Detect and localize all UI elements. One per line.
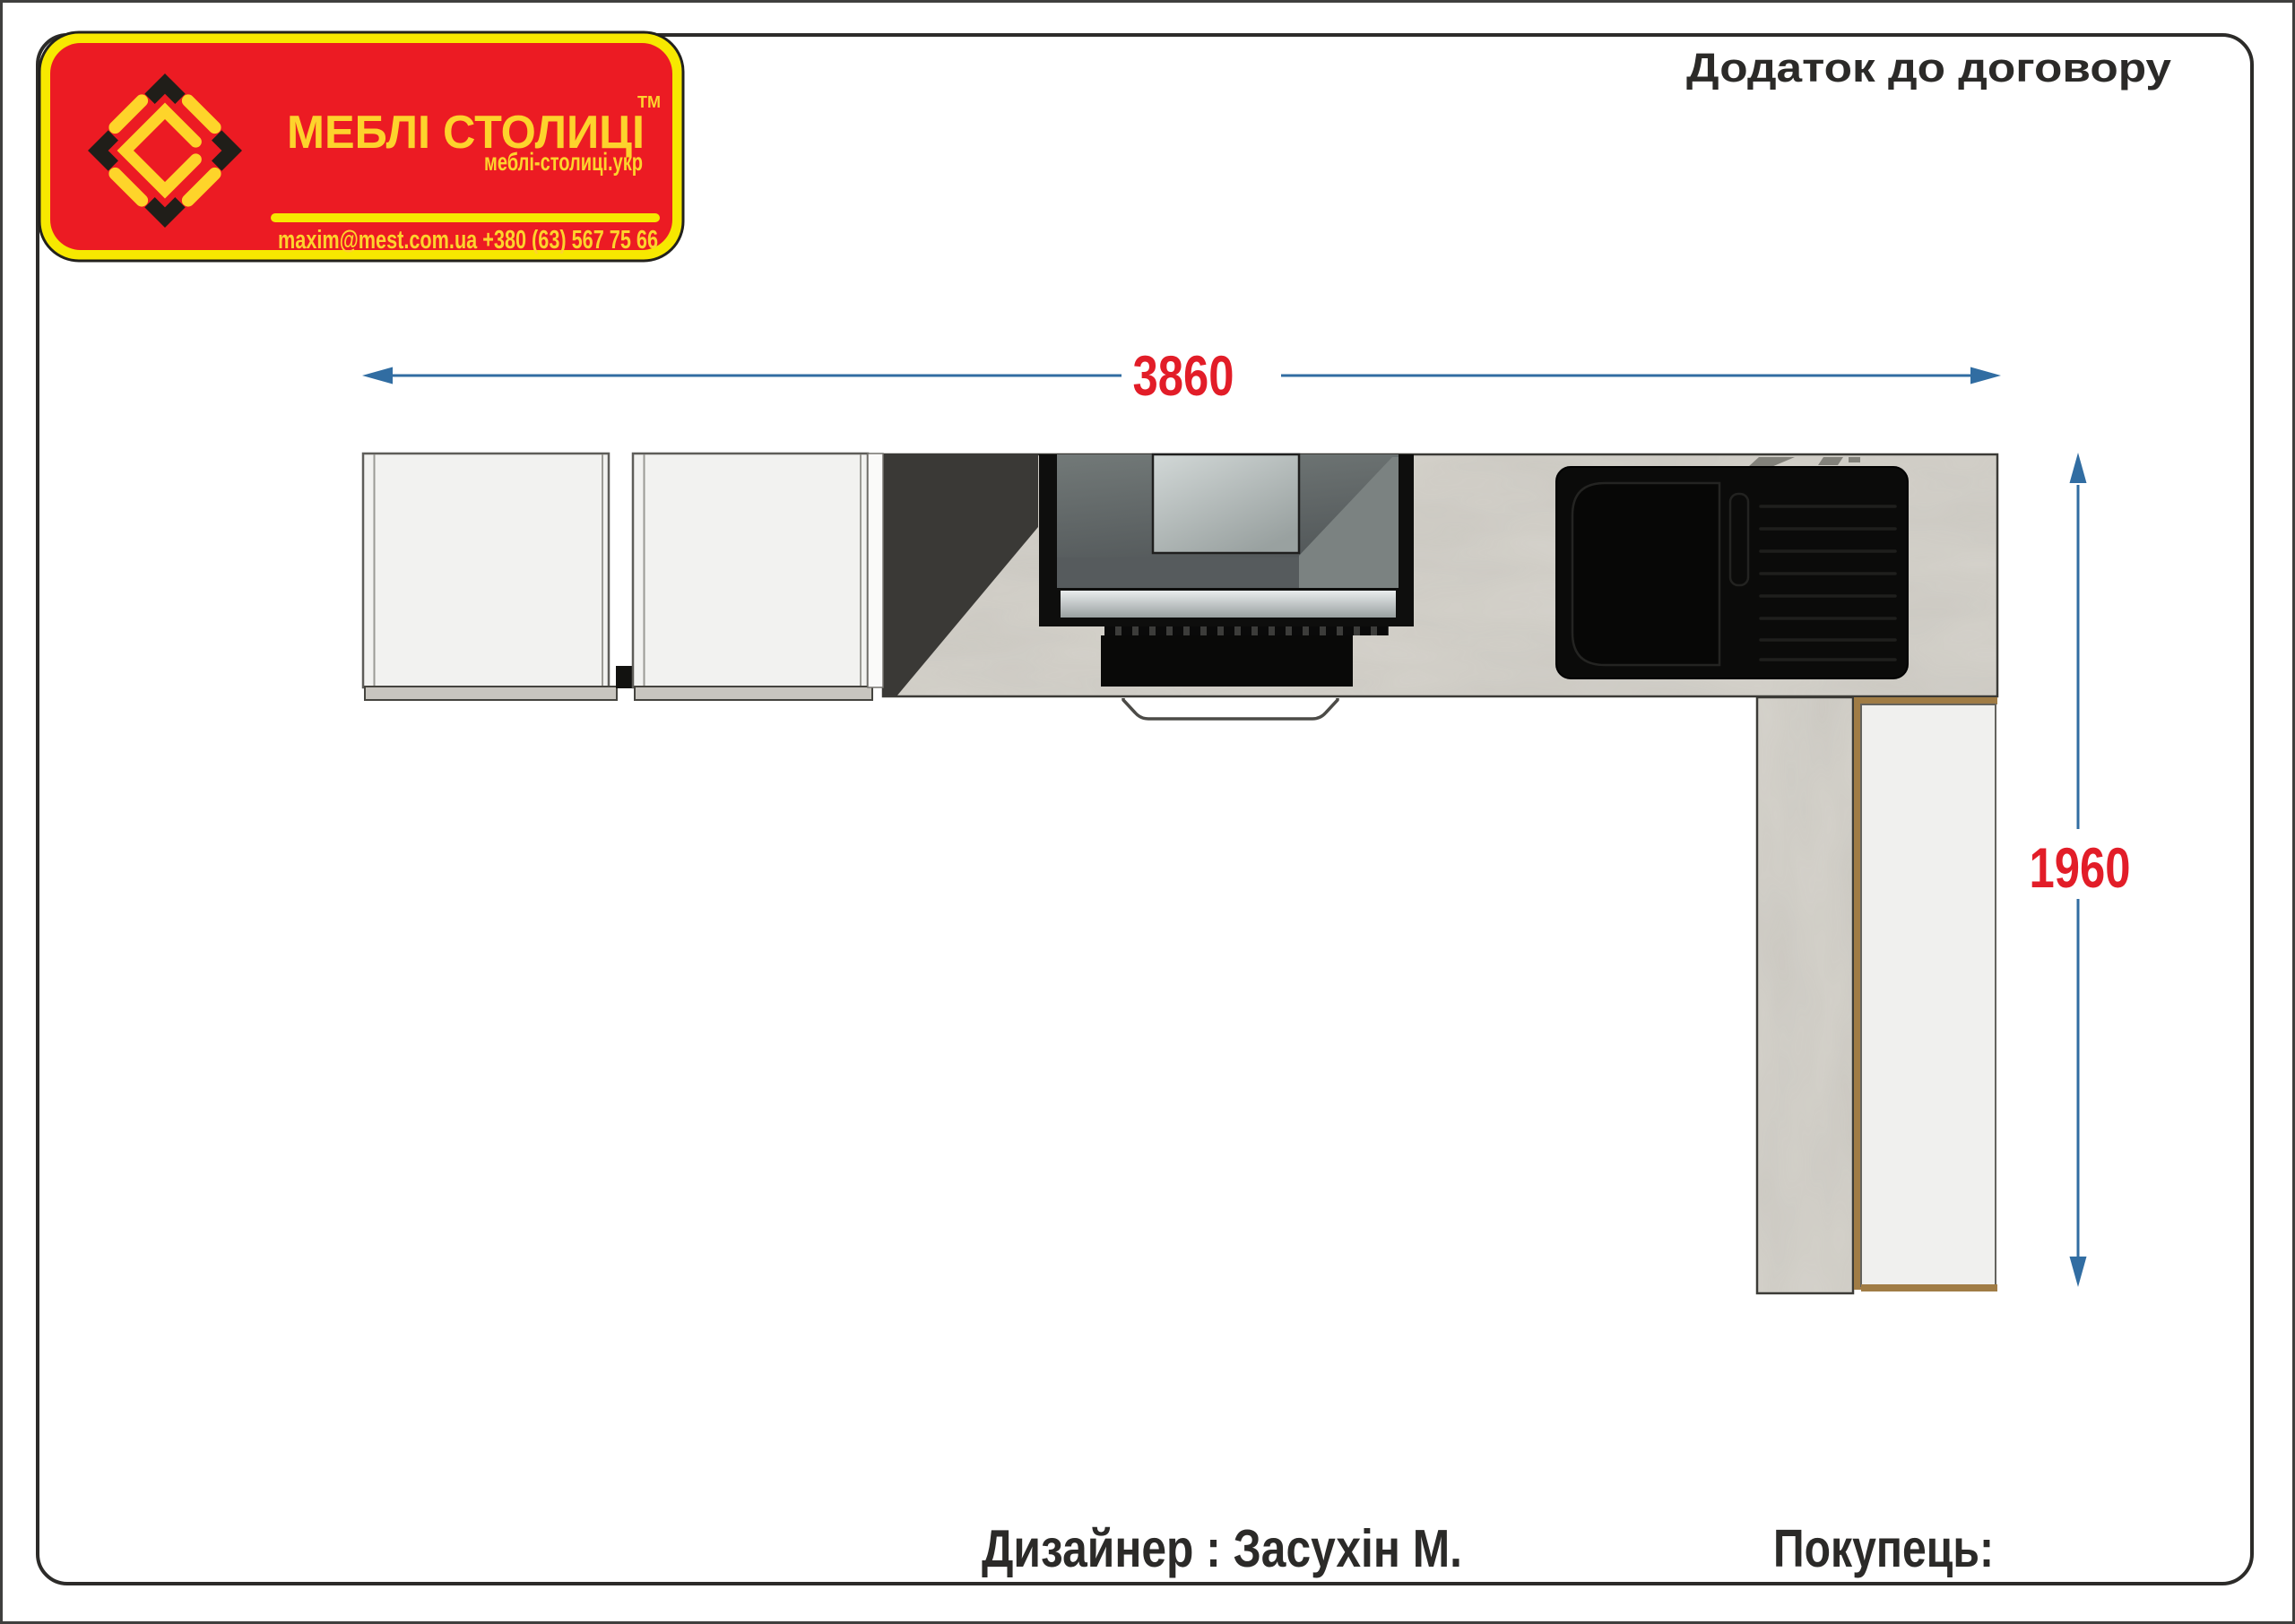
svg-text:Додаток до договору: Додаток до договору bbox=[1686, 45, 2171, 91]
svg-text:Покупець:: Покупець: bbox=[1773, 1519, 1994, 1578]
svg-text:maxim@mest.com.ua +380 (63) 5: maxim@mest.com.ua +380 (63) 567 75 66 bbox=[278, 226, 658, 255]
svg-text:меблі-столиці.укр: меблі-столиці.укр bbox=[484, 148, 643, 176]
svg-text:Дизайнер : Засухін М.: Дизайнер : Засухін М. bbox=[982, 1519, 1462, 1578]
svg-text:3860: 3860 bbox=[1133, 345, 1234, 408]
svg-text:1960: 1960 bbox=[2030, 837, 2131, 900]
